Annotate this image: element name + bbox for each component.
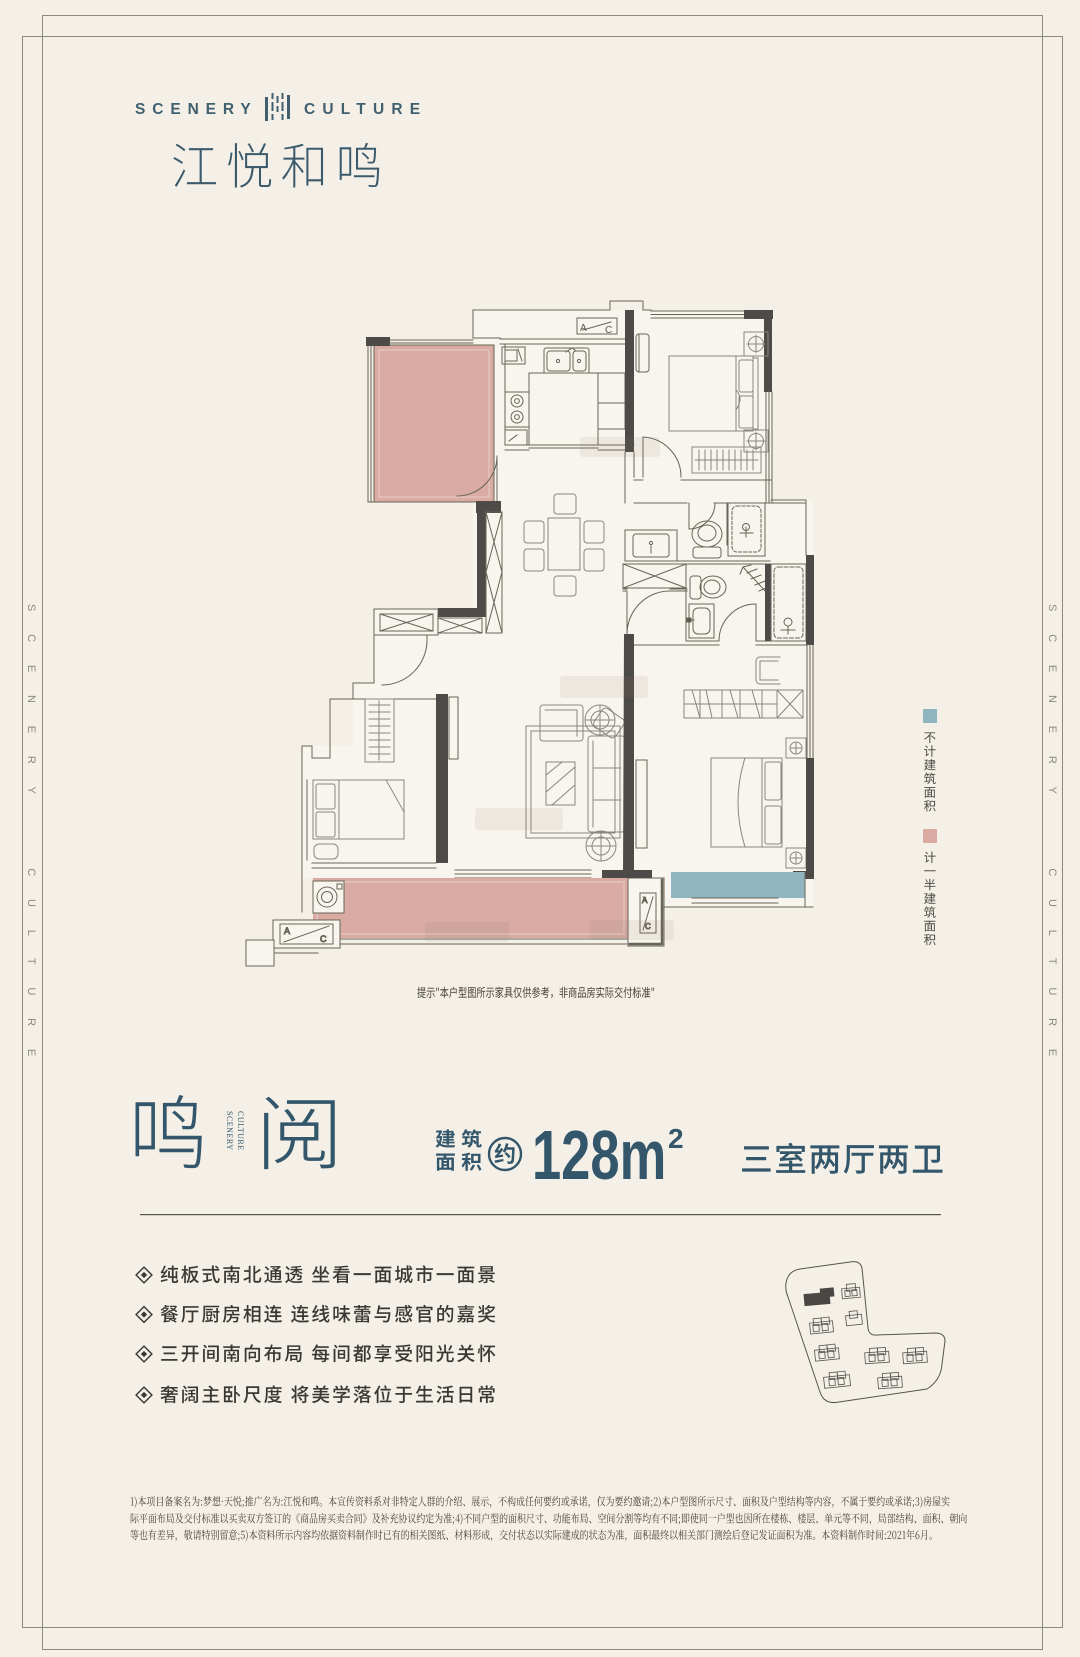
svg-text:CULTURE: CULTURE	[236, 1111, 245, 1151]
svg-text:C: C	[320, 934, 327, 944]
svg-text:C: C	[605, 325, 612, 336]
svg-text:A: A	[284, 926, 290, 936]
svg-text:A: A	[580, 323, 587, 334]
svg-text:SCENERY CULTURE: SCENERY CULTURE	[1046, 604, 1058, 1079]
svg-text:SCENERY CULTURE: SCENERY CULTURE	[25, 604, 37, 1079]
svg-text:SCENERY: SCENERY	[135, 101, 258, 118]
svg-text:128m: 128m	[532, 1117, 666, 1195]
svg-text:2: 2	[668, 1123, 684, 1154]
svg-text:SCENERY: SCENERY	[225, 1111, 234, 1151]
svg-text:A: A	[642, 896, 648, 905]
svg-text:CULTURE: CULTURE	[304, 101, 427, 118]
